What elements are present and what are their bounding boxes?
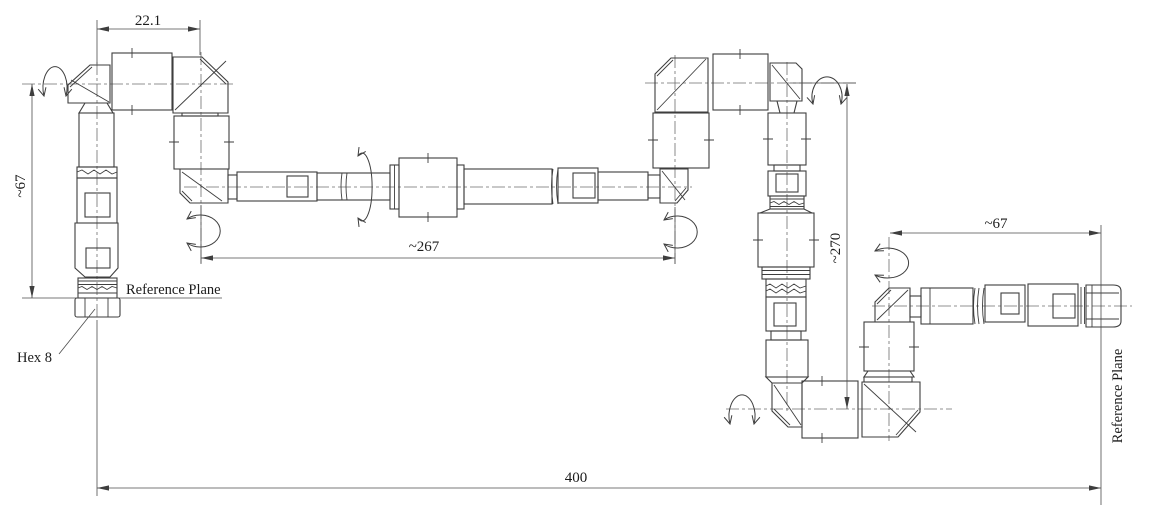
cable-tube — [317, 173, 390, 200]
right-vertical-cable — [758, 113, 814, 383]
swivel-body — [653, 113, 709, 168]
dim-value-67-left: ~67 — [13, 174, 29, 198]
hex-nut — [75, 298, 120, 317]
cable-tube — [598, 172, 648, 200]
neck — [910, 296, 921, 317]
dim-value-267: ~267 — [409, 239, 440, 255]
center-swivel-body — [399, 158, 457, 217]
collar — [864, 377, 912, 382]
reference-plane-right-label: Reference Plane — [1110, 349, 1126, 444]
rotation-arrow-icon — [664, 216, 697, 248]
rotation-arrow-icon — [875, 248, 909, 278]
dimension-400: 400 — [97, 320, 1101, 496]
window — [1001, 293, 1019, 314]
window — [774, 303, 796, 326]
connector-body-upper — [79, 113, 114, 167]
hex-label: Hex 8 — [17, 350, 52, 366]
leader-line — [59, 309, 95, 354]
reference-plane-left: Reference Plane — [22, 282, 222, 298]
dimension-67-left: ~67 — [13, 84, 32, 298]
dim-value-270: ~270 — [828, 233, 844, 264]
rings — [762, 267, 810, 279]
cable-assembly-drawing: 22.1 ~67 ~267 ~270 ~67 400 Reference Pla… — [0, 0, 1149, 510]
dimension-270: ~270 — [790, 83, 856, 409]
technical-drawing-canvas: 22.1 ~67 ~267 ~270 ~67 400 Reference Pla… — [0, 0, 1149, 510]
dim-value-22-1: 22.1 — [135, 13, 161, 29]
center-lines — [22, 52, 1132, 441]
dimension-67-right: ~67 — [890, 216, 1101, 233]
top-left-joint — [68, 53, 229, 203]
crimp-wave — [78, 287, 117, 290]
window — [573, 173, 595, 198]
window — [85, 193, 110, 217]
window — [86, 248, 110, 268]
neck — [771, 331, 801, 340]
taper — [760, 209, 812, 213]
rotation-arrow-icon — [729, 395, 755, 424]
elbow-block — [180, 169, 228, 203]
window — [287, 176, 308, 197]
swivel-body — [112, 53, 172, 110]
left-connector — [75, 103, 120, 317]
dim-value-400: 400 — [565, 470, 588, 486]
rotation-symbols — [43, 67, 909, 424]
reference-plane-right: Reference Plane — [1101, 225, 1126, 505]
swivel-body — [713, 54, 768, 110]
swivel-body — [174, 116, 229, 169]
joint-tick-marks — [132, 48, 919, 443]
rotation-arrow-icon — [43, 67, 67, 96]
rotation-arrow-icon — [812, 77, 842, 104]
swivel-body — [802, 381, 858, 438]
neck — [79, 103, 113, 113]
bottom-right-joint — [772, 377, 920, 438]
rotation-arrow-icon — [187, 215, 220, 247]
swivel-body — [758, 213, 814, 267]
dimension-267: ~267 — [201, 205, 675, 264]
neck — [648, 175, 660, 198]
dim-value-67-right: ~67 — [984, 216, 1008, 232]
middle-cable — [228, 158, 660, 217]
connector-body-lower — [75, 223, 118, 277]
right-connector — [864, 284, 1121, 377]
cable-tube — [464, 169, 552, 204]
reference-plane-left-label: Reference Plane — [126, 282, 221, 298]
